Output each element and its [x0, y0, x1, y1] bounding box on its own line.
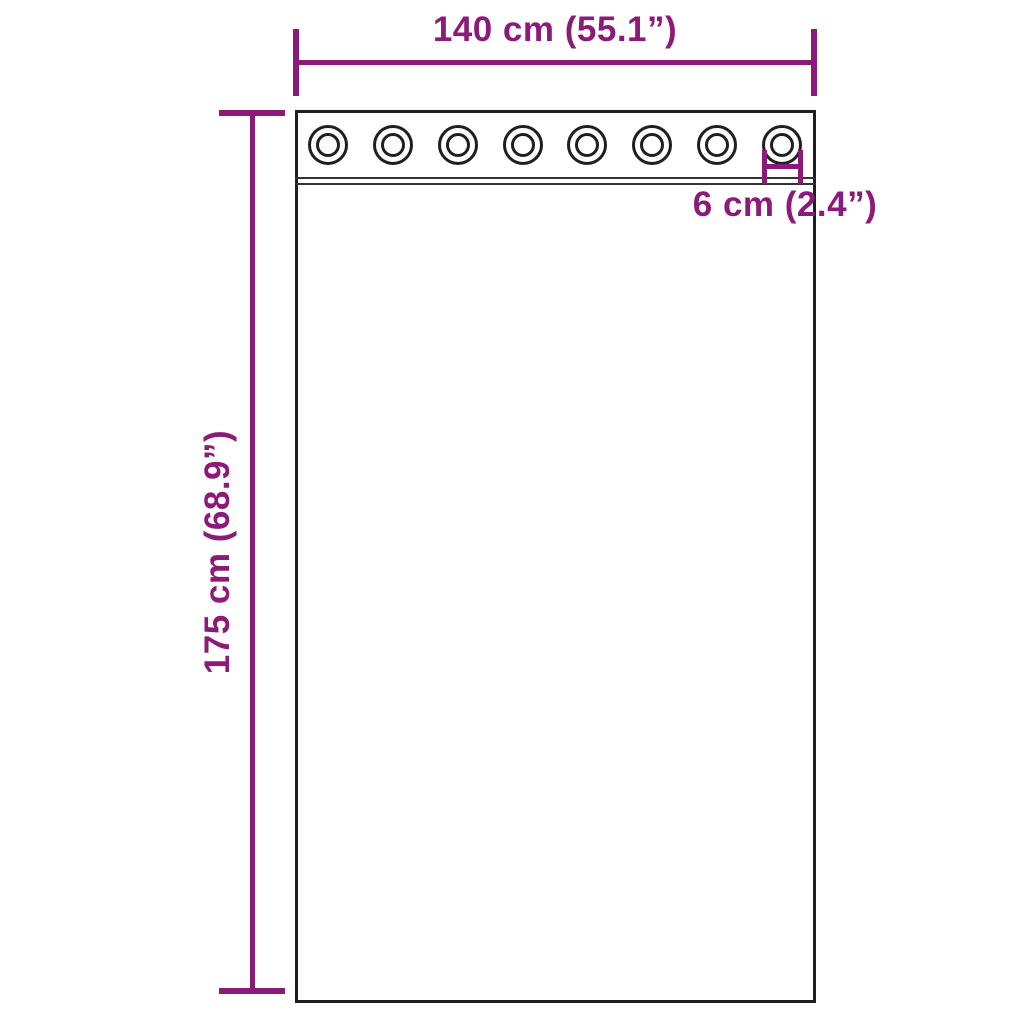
grommet-hole	[575, 133, 599, 157]
grommet-hole	[511, 133, 535, 157]
width-dimension-cap-left	[293, 29, 299, 96]
grommet-ring-icon	[632, 125, 672, 165]
grommet-hole	[316, 133, 340, 157]
width-dimension-label: 140 cm (55.1”)	[296, 8, 814, 52]
grommet-hole	[446, 133, 470, 157]
grommet-ring-icon	[697, 125, 737, 165]
grommet-hole	[381, 133, 405, 157]
height-dimension-cap-bottom	[219, 988, 285, 994]
grommet-hole	[640, 133, 664, 157]
curtain-panel-outline	[295, 110, 816, 1003]
height-dimension-line	[250, 113, 255, 991]
grommet-dimension-bracket-bar	[767, 164, 798, 169]
height-dimension-cap-top	[219, 110, 285, 116]
grommet-ring-icon	[438, 125, 478, 165]
header-seam-line-upper	[295, 177, 816, 179]
grommet-dimension-label: 6 cm (2.4”)	[693, 185, 877, 225]
height-dimension-label: 175 cm (68.9”)	[198, 430, 238, 674]
grommet-ring-icon	[503, 125, 543, 165]
product-dimension-diagram: 140 cm (55.1”) 175 cm (68.9”) 6 cm (2.4”…	[0, 0, 1024, 1024]
width-dimension-line	[296, 60, 814, 65]
width-dimension-cap-right	[811, 29, 817, 96]
grommet-dimension-bracket	[762, 150, 803, 184]
grommet-ring-icon	[308, 125, 348, 165]
grommet-hole	[705, 133, 729, 157]
grommet-ring-icon	[373, 125, 413, 165]
grommet-ring-icon	[567, 125, 607, 165]
grommet-row	[308, 125, 802, 165]
